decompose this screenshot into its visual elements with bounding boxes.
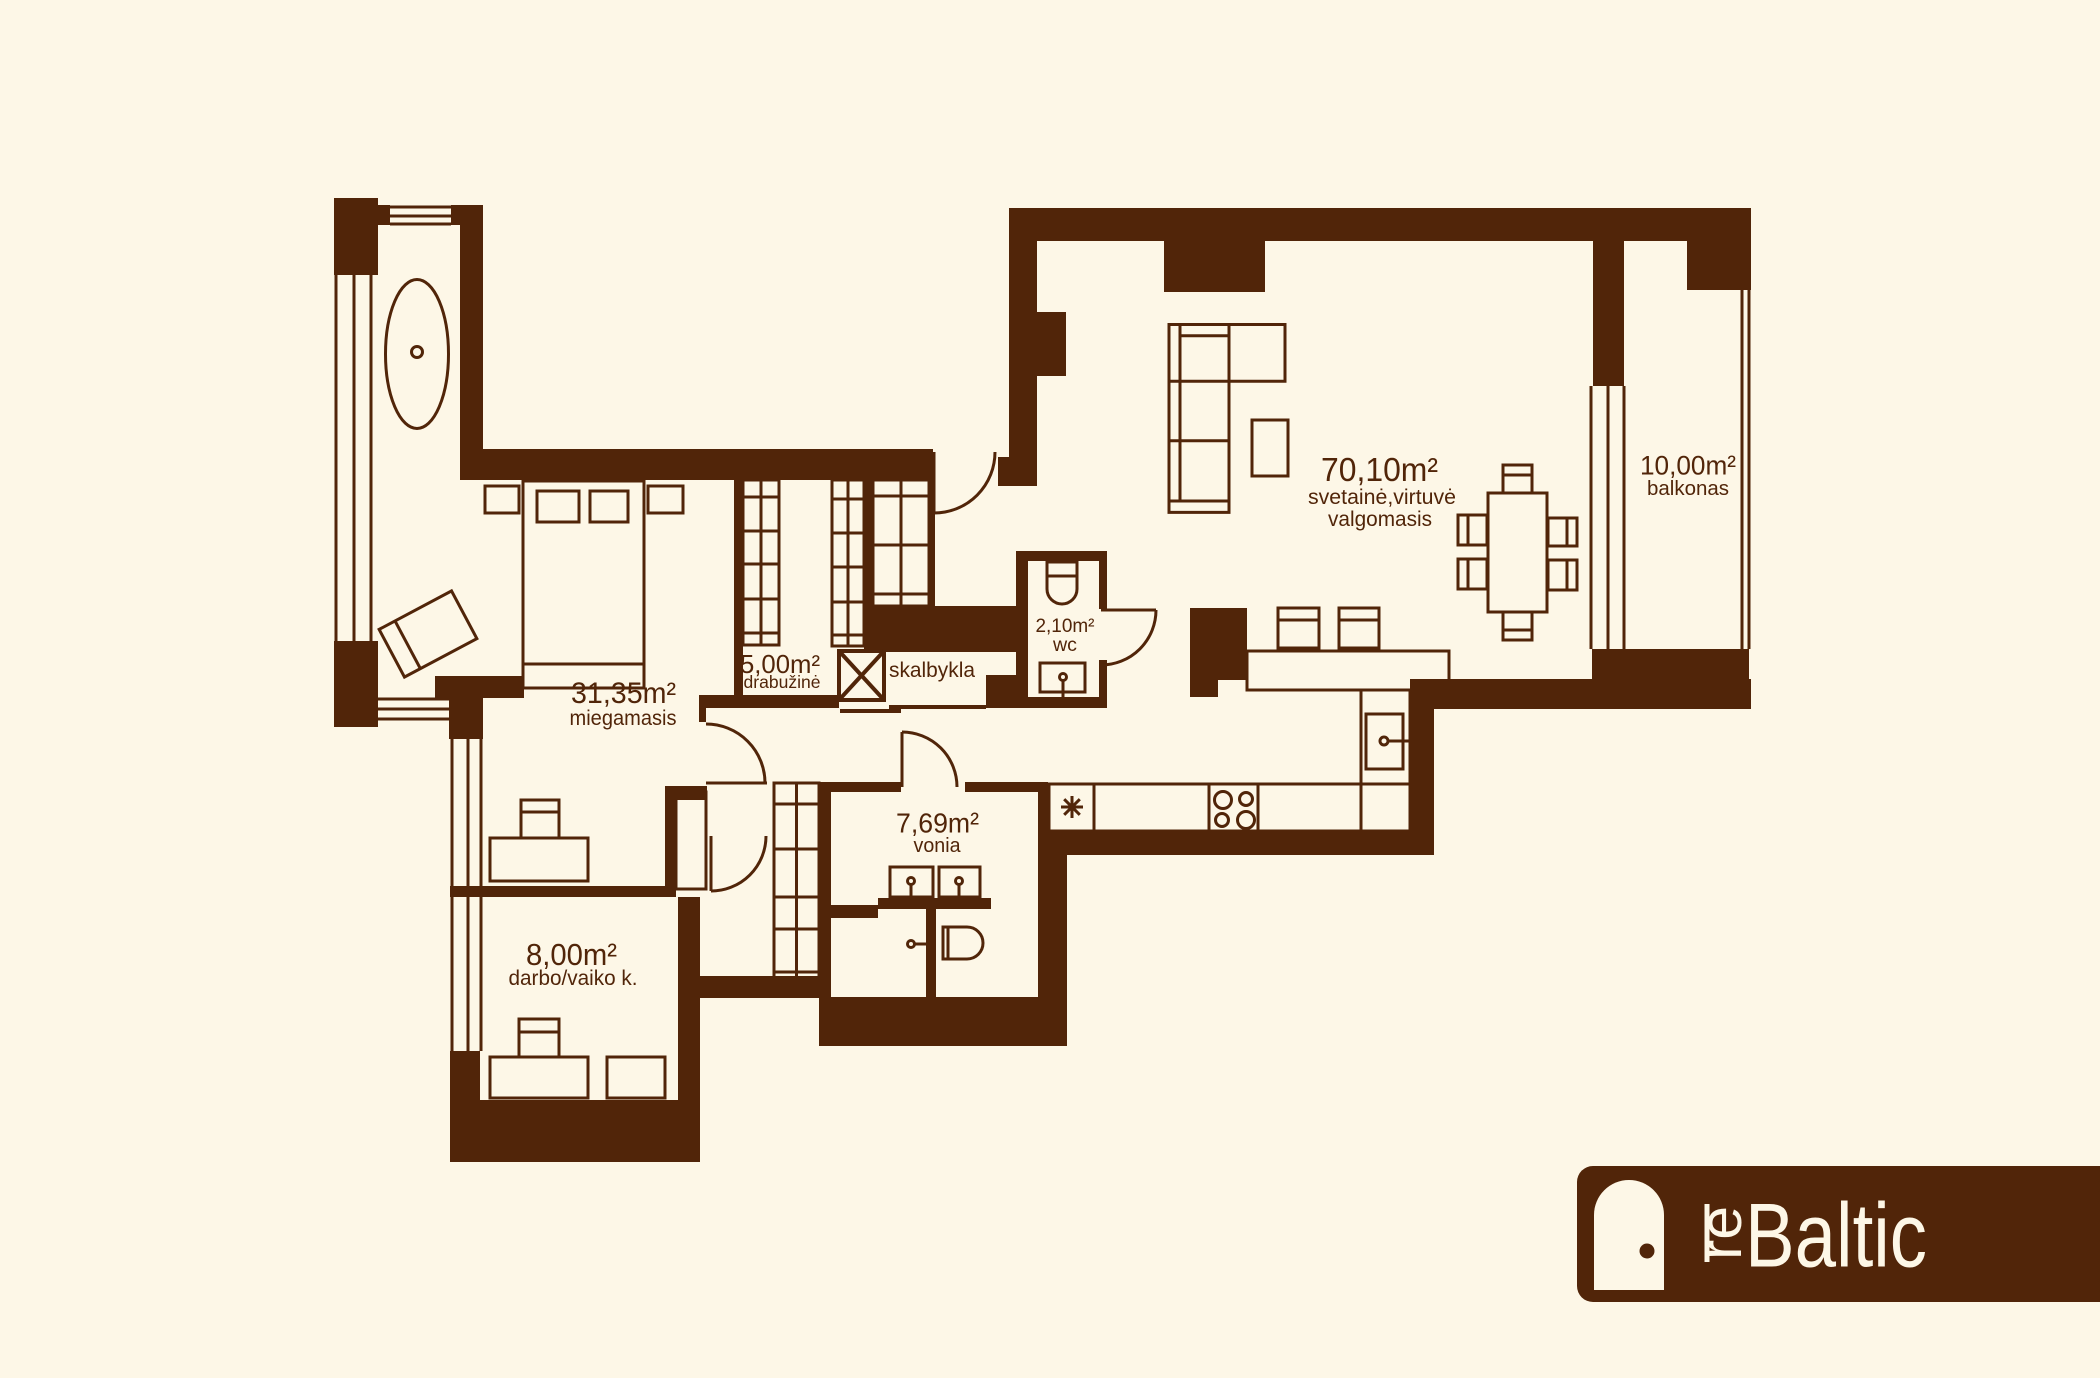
svg-text:10,00m²: 10,00m²	[1640, 451, 1736, 481]
svg-text:70,10m²: 70,10m²	[1321, 451, 1438, 488]
svg-text:skalbykla: skalbykla	[889, 659, 975, 682]
svg-text:svetainė,virtuvė: svetainė,virtuvė	[1308, 486, 1456, 509]
svg-text:drabužinė: drabužinė	[744, 672, 821, 692]
svg-text:31,35m²: 31,35m²	[571, 677, 676, 710]
svg-text:miegamasis: miegamasis	[570, 707, 677, 730]
svg-text:Baltic: Baltic	[1745, 1186, 1927, 1287]
svg-text:vonia: vonia	[914, 835, 962, 857]
svg-text:balkonas: balkonas	[1647, 478, 1729, 500]
svg-text:valgomasis: valgomasis	[1328, 508, 1432, 531]
svg-text:darbo/vaiko k.: darbo/vaiko k.	[509, 967, 638, 990]
svg-text:7,69m²: 7,69m²	[896, 808, 979, 839]
svg-text:2,10m²: 2,10m²	[1036, 616, 1095, 637]
svg-text:wc: wc	[1052, 635, 1077, 656]
svg-text:re: re	[1687, 1206, 1754, 1260]
